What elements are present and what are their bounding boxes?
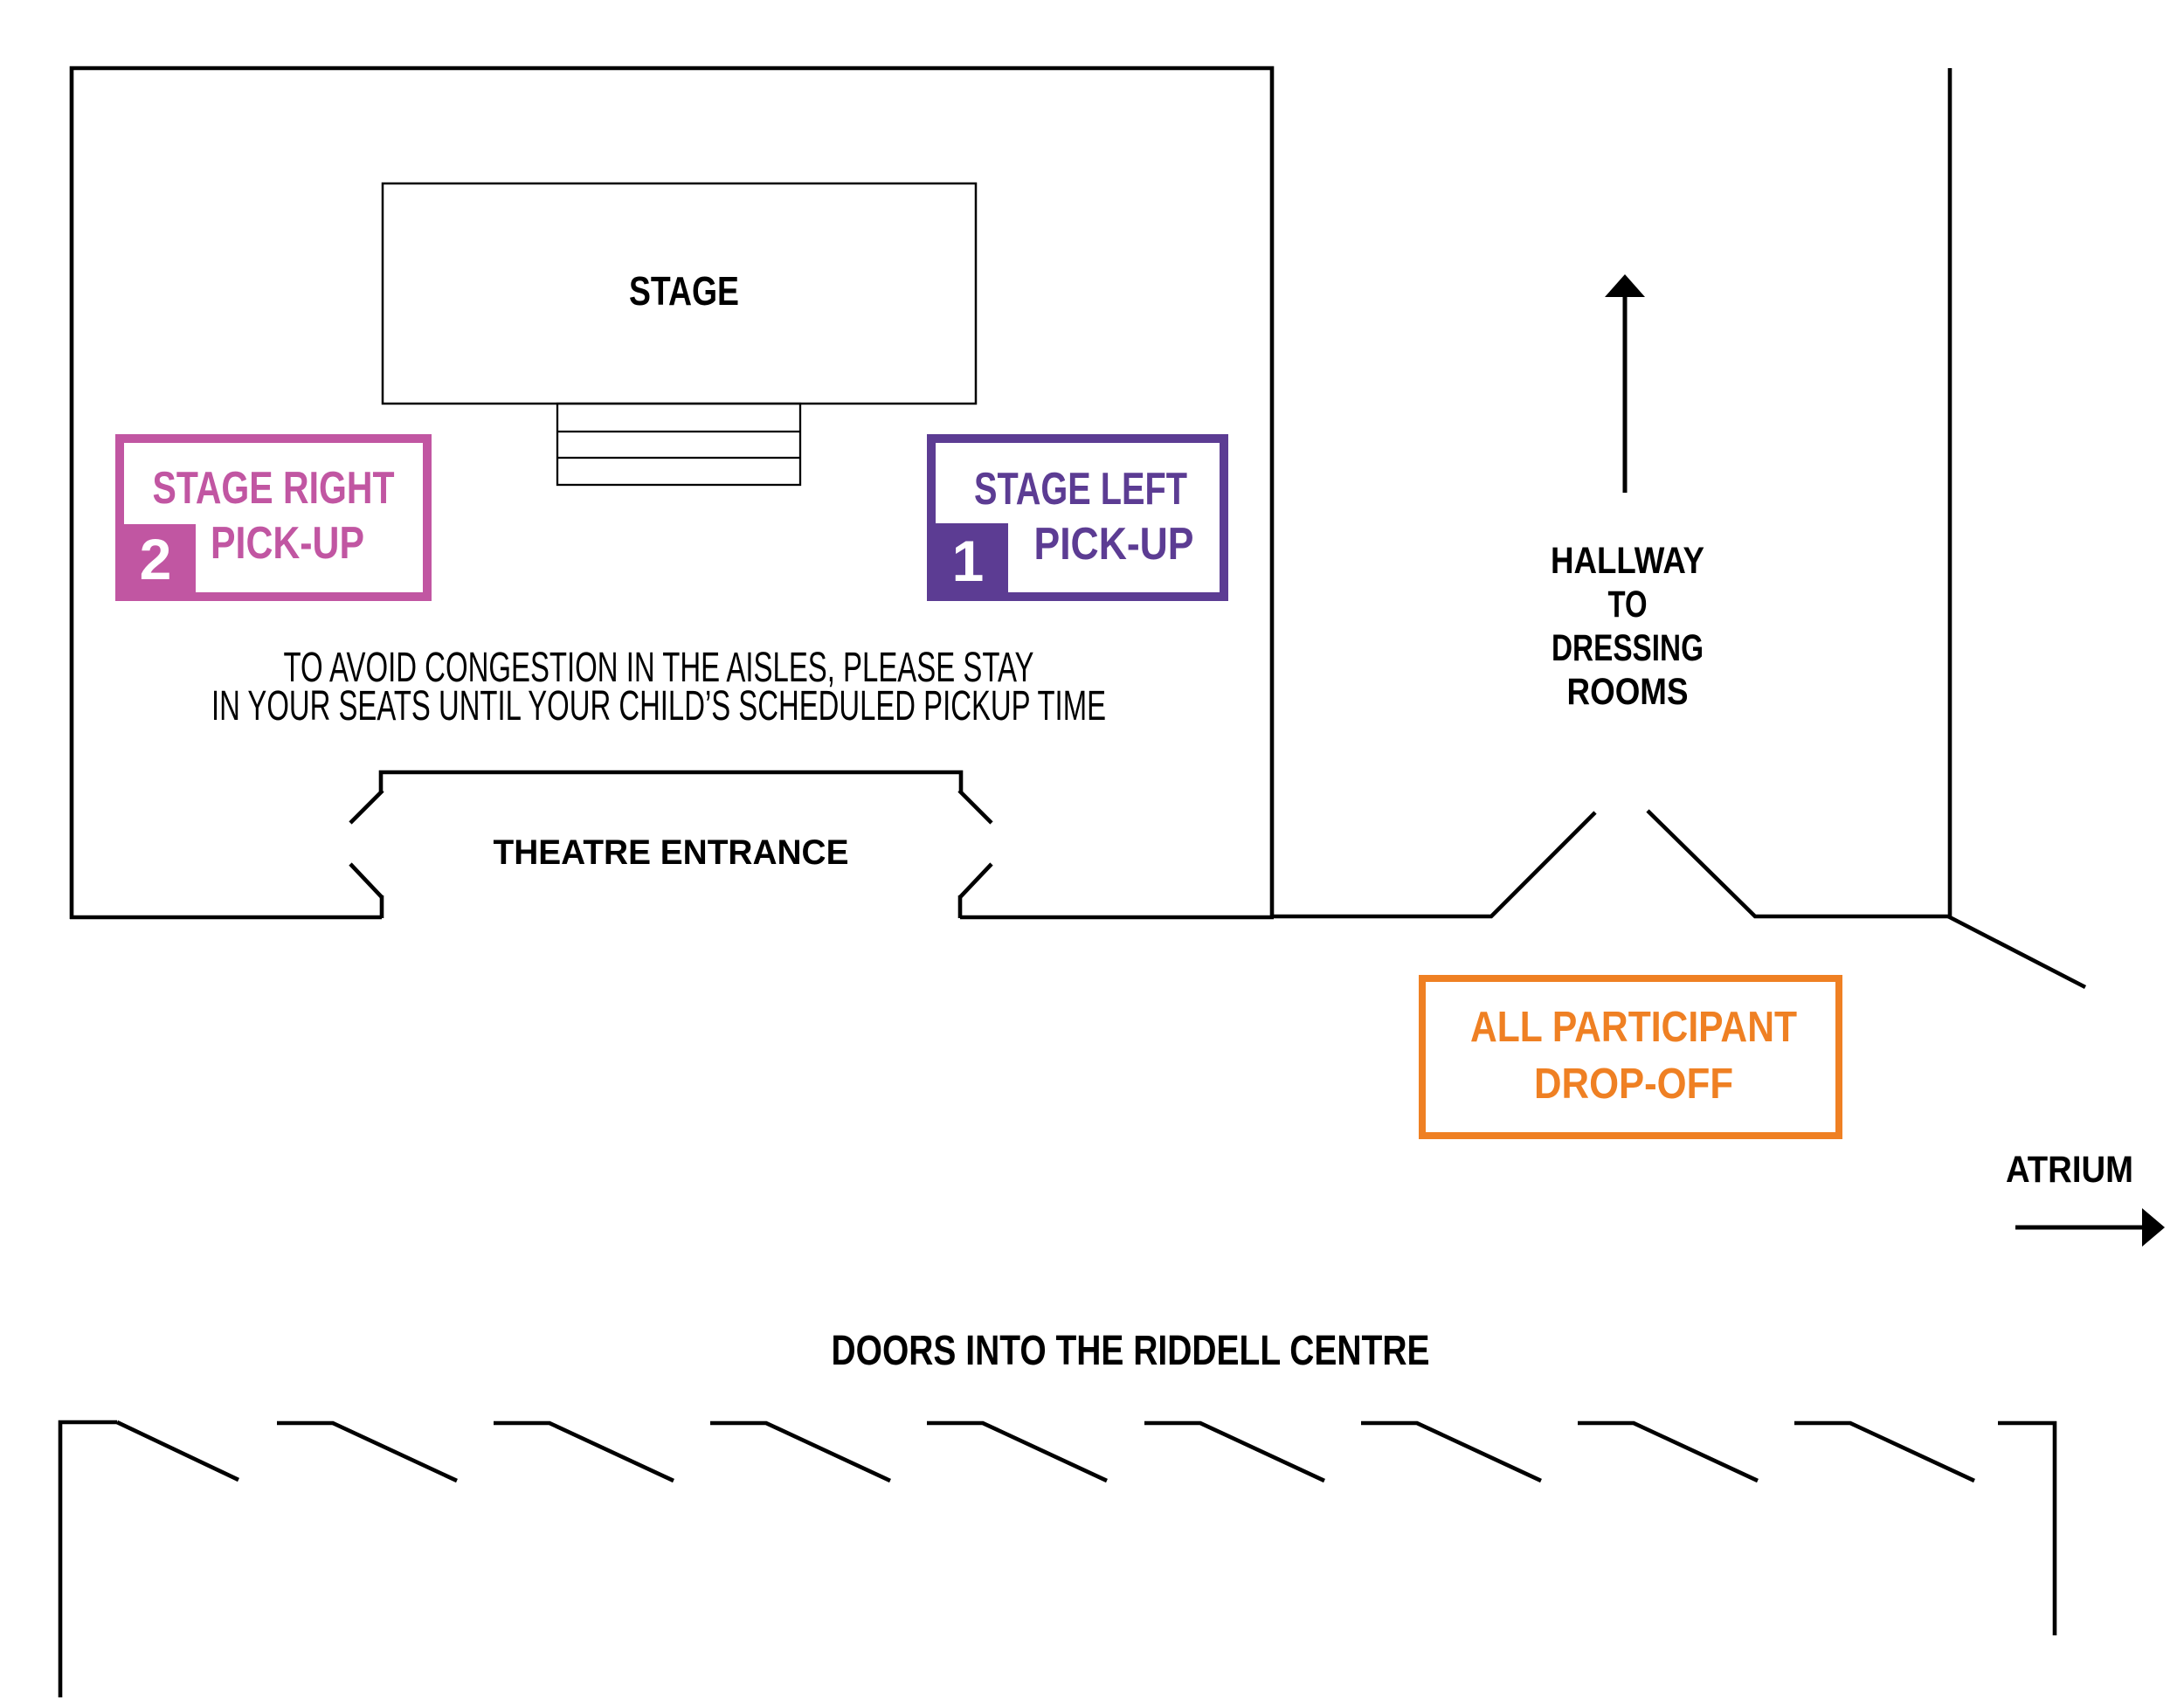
svg-text:DRESSING: DRESSING bbox=[1552, 627, 1704, 669]
svg-text:ROOMS: ROOMS bbox=[1567, 671, 1689, 713]
svg-text:STAGE LEFT: STAGE LEFT bbox=[974, 464, 1187, 515]
svg-text:1: 1 bbox=[952, 529, 985, 593]
svg-text:IN YOUR SEATS UNTIL YOUR CHILD: IN YOUR SEATS UNTIL YOUR CHILD’S SCHEDUL… bbox=[211, 683, 1106, 729]
svg-text:ALL PARTICIPANT: ALL PARTICIPANT bbox=[1470, 1004, 1797, 1051]
svg-text:STAGE RIGHT: STAGE RIGHT bbox=[153, 463, 395, 514]
svg-text:PICK-UP: PICK-UP bbox=[1034, 519, 1194, 570]
svg-text:PICK-UP: PICK-UP bbox=[211, 518, 364, 569]
svg-text:ATRIUM: ATRIUM bbox=[2006, 1149, 2133, 1191]
svg-text:DROP-OFF: DROP-OFF bbox=[1534, 1061, 1733, 1108]
svg-text:TO: TO bbox=[1608, 584, 1648, 625]
svg-text:THEATRE ENTRANCE: THEATRE ENTRANCE bbox=[494, 833, 849, 872]
svg-text:HALLWAY: HALLWAY bbox=[1551, 540, 1704, 582]
svg-text:STAGE: STAGE bbox=[629, 268, 739, 314]
svg-text:2: 2 bbox=[140, 527, 172, 591]
svg-text:DOORS INTO THE RIDDELL CENTRE: DOORS INTO THE RIDDELL CENTRE bbox=[832, 1328, 1430, 1374]
